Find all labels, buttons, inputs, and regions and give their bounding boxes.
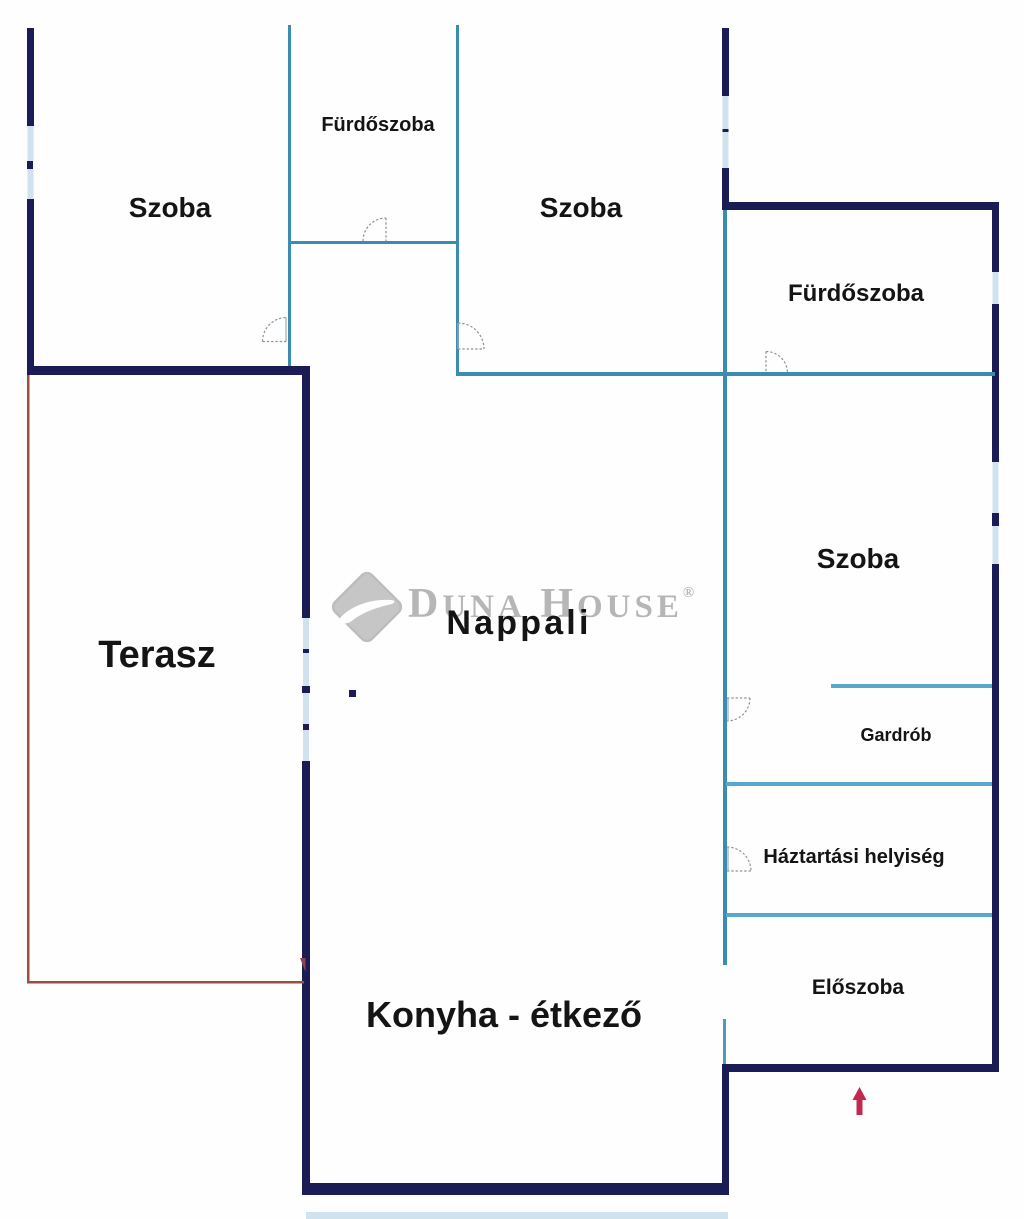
svg-text:Nappali: Nappali xyxy=(446,604,591,642)
svg-text:Háztartási helyiség: Háztartási helyiség xyxy=(763,846,944,868)
svg-text:Előszoba: Előszoba xyxy=(812,976,905,999)
svg-text:Szoba: Szoba xyxy=(129,192,212,223)
svg-text:Gardrób: Gardrób xyxy=(860,725,931,745)
svg-text:Terasz: Terasz xyxy=(98,634,216,676)
svg-text:Konyha - étkező: Konyha - étkező xyxy=(366,994,642,1035)
svg-text:Fürdőszoba: Fürdőszoba xyxy=(788,280,925,307)
svg-text:Szoba: Szoba xyxy=(540,192,623,223)
svg-text:Szoba: Szoba xyxy=(817,543,900,574)
svg-text:Fürdőszoba: Fürdőszoba xyxy=(321,114,435,136)
